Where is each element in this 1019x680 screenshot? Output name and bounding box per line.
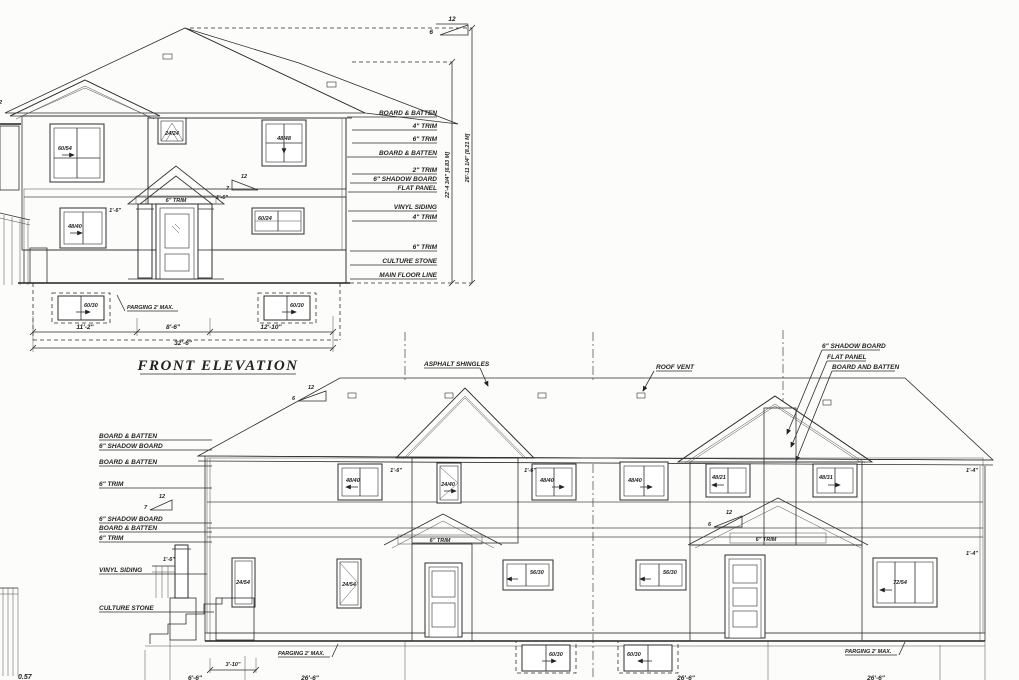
front-elevation-title: FRONT ELEVATION xyxy=(137,358,299,374)
roof-vent xyxy=(637,393,645,398)
leader-note: 6" SHADOW BOARD xyxy=(350,176,437,183)
leader-note: 6" TRIM xyxy=(350,244,438,251)
dim-label: 26'-6" xyxy=(866,675,886,680)
front-bottom-dimensions: 11'-2" 8'-6" 12'-10" 32'-6" xyxy=(30,316,336,352)
note-label: FLAT PANEL xyxy=(827,354,867,361)
rear-left-labels: BOARD & BATTEN 6" SHADOW BOARD BOARD & B… xyxy=(99,433,214,612)
note-label: 6" SHADOW BOARD xyxy=(373,176,437,183)
leader-note: VINYL SIDING xyxy=(348,204,437,211)
leader-note: 6" SHADOW BOARD xyxy=(99,516,212,523)
leader-note: FLAT PANEL xyxy=(348,185,437,192)
window-label: 48/40 xyxy=(539,478,554,484)
dim-total-label: 32'-6" xyxy=(174,340,193,347)
dim-label: 6'-6" xyxy=(188,675,203,680)
gable-trim-label: 6" TRIM xyxy=(430,538,451,544)
pitch-run: 12 xyxy=(159,494,165,500)
note-label: BOARD AND BATTEN xyxy=(832,364,899,371)
rear-door-2 xyxy=(725,555,765,638)
note-label: ASPHALT SHINGLES xyxy=(423,361,490,368)
edge-railing-fragment xyxy=(0,588,18,676)
window-48-31: 48/31 xyxy=(813,464,857,497)
note-label: 6" TRIM xyxy=(99,481,124,488)
front-elevation: 12 6 12 60/54 24/24 xyxy=(0,16,475,374)
window-48-21: 48/21 xyxy=(706,464,750,497)
parging-label: PARGING 2' MAX. xyxy=(845,649,892,655)
rear-mid-pitch-marker: 12 7 xyxy=(144,494,172,511)
chimney xyxy=(764,408,796,545)
basement-window-60-30-right: 60/30 xyxy=(258,293,316,323)
window-label: 48/40 xyxy=(627,478,642,484)
basement-window-60-30-b: 60/30 xyxy=(618,641,678,673)
note-label: ROOF VENT xyxy=(656,364,695,371)
window-48-40-upper-right: 48/40 xyxy=(620,462,668,500)
porch-steps xyxy=(150,598,222,644)
rear-gable-2: 48/21 48/31 12 6 6" TRIM xyxy=(678,396,872,641)
roof-vent xyxy=(538,393,546,398)
parging-label: PARGING 2' MAX. xyxy=(278,651,325,657)
note-label: VINYL SIDING xyxy=(99,567,142,574)
note-label: 4" TRIM xyxy=(412,123,438,130)
leader-note: BOARD & BATTEN xyxy=(99,459,212,466)
leader-note: MAIN FLOOR LINE xyxy=(350,272,438,279)
pitch-rise: 7 xyxy=(144,505,148,511)
leader-note: BOARD & BATTEN xyxy=(347,150,437,157)
architectural-drawing-sheet: 12 6 12 60/54 24/24 xyxy=(0,0,1019,680)
drawing-title: FRONT ELEVATION xyxy=(137,358,299,374)
leader-note: BOARD & BATTEN xyxy=(99,525,212,532)
leader-note: BOARD AND BATTEN xyxy=(796,364,899,461)
pitch-run: 12 xyxy=(726,510,732,516)
window-60-24: 60/24 xyxy=(252,208,304,234)
pitch-run: 12 xyxy=(308,385,314,391)
note-label: 6" TRIM xyxy=(413,136,438,143)
window-label: 24/40 xyxy=(440,482,455,488)
pitch-run: 12 xyxy=(448,16,456,23)
roof-vent xyxy=(823,400,831,405)
rear-roof-pitch-marker: 12 6 xyxy=(292,385,326,402)
note-label: BOARD & BATTEN xyxy=(99,433,157,440)
roof-vent xyxy=(348,393,356,398)
right-wall-dim: 1'-4" xyxy=(966,551,978,557)
porch-column xyxy=(138,204,152,278)
rear-door-1 xyxy=(425,563,462,637)
window-label: 60/24 xyxy=(258,216,272,222)
leader-note: 6" TRIM xyxy=(99,481,212,488)
window-label: 24/54 xyxy=(235,580,250,586)
note-label: 6" SHADOW BOARD xyxy=(822,343,886,350)
asphalt-shingles-note: ASPHALT SHINGLES xyxy=(423,361,490,386)
window-48-40-upper-mid: 48/40 xyxy=(532,464,576,500)
note-label: 2" TRIM xyxy=(412,167,438,174)
note-label: BOARD & BATTEN xyxy=(379,110,437,117)
window-label: 60/30 xyxy=(84,303,98,309)
porch-dim-right: 1'-6" xyxy=(216,195,228,201)
right-top-dim: 1'-4" xyxy=(966,468,978,474)
parging-note-right: PARGING 2' MAX. xyxy=(845,642,905,655)
window-24-24: 24/24 xyxy=(158,118,186,144)
dim-label: 11'-2" xyxy=(76,324,94,331)
dim-label: 26'-6" xyxy=(676,675,696,680)
window-label: 48/21 xyxy=(711,475,726,481)
window-24-40-dormer: 24/40 xyxy=(437,463,461,503)
window-label: 48/31 xyxy=(818,475,833,481)
window-label: 60/30 xyxy=(627,652,641,658)
note-label: BOARD & BATTEN xyxy=(379,150,437,157)
note-label: 6" TRIM xyxy=(413,244,438,251)
window-label: 60/30 xyxy=(290,303,304,309)
corner-text-fragment: 0.57 xyxy=(18,674,33,680)
gable-dim-left: 1'-6" xyxy=(390,468,402,474)
leader-note: 2" TRIM xyxy=(352,167,438,174)
parging-note: PARGING 2' MAX. xyxy=(117,295,178,311)
note-label: 6" SHADOW BOARD xyxy=(99,443,163,450)
pitch-rise: 6 xyxy=(292,396,296,402)
dim-label: 26'-6" xyxy=(300,675,320,680)
front-basement: 60/30 60/30 PARGING 2' MAX. xyxy=(18,283,472,340)
window-24-54-b: 24/54 xyxy=(337,559,361,608)
basement-window-60-30-left: 60/30 xyxy=(52,293,110,323)
window-60-54: 60/54 xyxy=(50,124,104,182)
leader-note: BOARD & BATTEN xyxy=(99,433,212,440)
window-56-30-b: 56/30 xyxy=(636,560,686,590)
porch-dim: 1'-6" xyxy=(163,557,175,563)
leader-note: CULTURE STONE xyxy=(350,258,438,265)
window-56-30-a: 56/30 xyxy=(503,560,553,590)
note-label: 6" TRIM xyxy=(99,535,124,542)
note-label: VINYL SIDING xyxy=(394,204,437,211)
window-24-54-a: 24/54 xyxy=(232,558,255,607)
window-label: 48/48 xyxy=(276,136,292,142)
dim-label: 8'-6" xyxy=(166,324,181,331)
window-label: 72/54 xyxy=(893,580,907,586)
leader-note: 6" SHADOW BOARD xyxy=(99,443,212,450)
note-label: 4" TRIM xyxy=(412,214,438,221)
pitch-rise: 6 xyxy=(708,522,712,528)
basement-window-60-30-a: 60/30 xyxy=(516,641,576,673)
window-label: 48/40 xyxy=(67,224,82,230)
elevation-drawing-canvas: 12 6 12 60/54 24/24 xyxy=(0,0,1019,680)
window-72-54: 72/54 xyxy=(873,558,937,607)
front-roof-pitch-marker: 12 6 xyxy=(429,16,468,36)
note-label: MAIN FLOOR LINE xyxy=(379,272,437,279)
rear-top-right-labels: 6" SHADOW BOARD FLAT PANEL BOARD AND BAT… xyxy=(787,343,899,461)
window-label: 60/30 xyxy=(549,652,563,658)
window-label: 24/24 xyxy=(164,131,179,137)
rear-roof xyxy=(198,378,993,465)
dim-label: 3'-10" xyxy=(226,662,241,668)
gable-dim-right: 1'-6" xyxy=(524,468,536,474)
note-label: CULTURE STONE xyxy=(382,258,437,265)
note-label: FLAT PANEL xyxy=(398,185,438,192)
window-label: 60/54 xyxy=(58,146,72,152)
window-48-48: 48/48 xyxy=(262,120,306,166)
porch-column xyxy=(198,204,212,278)
window-label: 56/30 xyxy=(663,570,677,576)
leader-note: 6" TRIM xyxy=(99,535,212,542)
roof-vent xyxy=(163,54,172,59)
leader-note: 4" TRIM xyxy=(352,123,438,130)
rear-gable-1: 24/40 6" TRIM 1'-6" 1'-6" xyxy=(384,388,536,641)
porch-column xyxy=(175,545,188,598)
note-label: BOARD & BATTEN xyxy=(99,525,157,532)
window-48-40-upper-left: 48/40 xyxy=(338,464,382,500)
roof-vent xyxy=(445,393,453,398)
rear-elevation: 12 6 ASPHALT SHINGLES ROOF VENT 6" SHADO… xyxy=(0,330,993,680)
roof-vent-note: ROOF VENT xyxy=(643,364,695,391)
window-label: 56/30 xyxy=(530,570,544,576)
front-chimney xyxy=(0,124,21,190)
parging-label: PARGING 2' MAX. xyxy=(127,305,174,311)
window-48-40: 48/40 xyxy=(60,208,106,248)
front-left-railing xyxy=(0,213,47,285)
vertical-dim-outer: 26'-11 1/4" [8.21 M] xyxy=(465,133,471,183)
note-label: 6" SHADOW BOARD xyxy=(99,516,163,523)
window-label: 48/40 xyxy=(345,478,360,484)
dim-label: 12'-10" xyxy=(260,324,282,331)
pitch-run: 12 xyxy=(241,174,247,180)
gable-trim-label: 6" TRIM xyxy=(756,537,777,543)
leader-note: VINYL SIDING xyxy=(99,567,207,574)
porch-trim-label: 6" TRIM xyxy=(166,198,187,204)
leader-note: 4" TRIM xyxy=(352,214,438,221)
pitch-rise: 6 xyxy=(429,29,433,36)
porch-dim-left: 1'-6" xyxy=(109,208,121,214)
roof-vent xyxy=(327,82,336,87)
note-label: BOARD & BATTEN xyxy=(99,459,157,466)
front-right-labels: BOARD & BATTEN 4" TRIM 6" TRIM BOARD & B… xyxy=(347,110,438,279)
edge-pitch-fragment: 12 xyxy=(0,100,2,106)
window-label: 24/54 xyxy=(341,582,356,588)
leader-note: CULTURE STONE xyxy=(99,605,214,612)
note-label: CULTURE STONE xyxy=(99,605,154,612)
vertical-dim-inner: 22'-4 3/4" [6.83 M] xyxy=(445,152,451,199)
leader-note: 6" TRIM xyxy=(352,136,438,143)
